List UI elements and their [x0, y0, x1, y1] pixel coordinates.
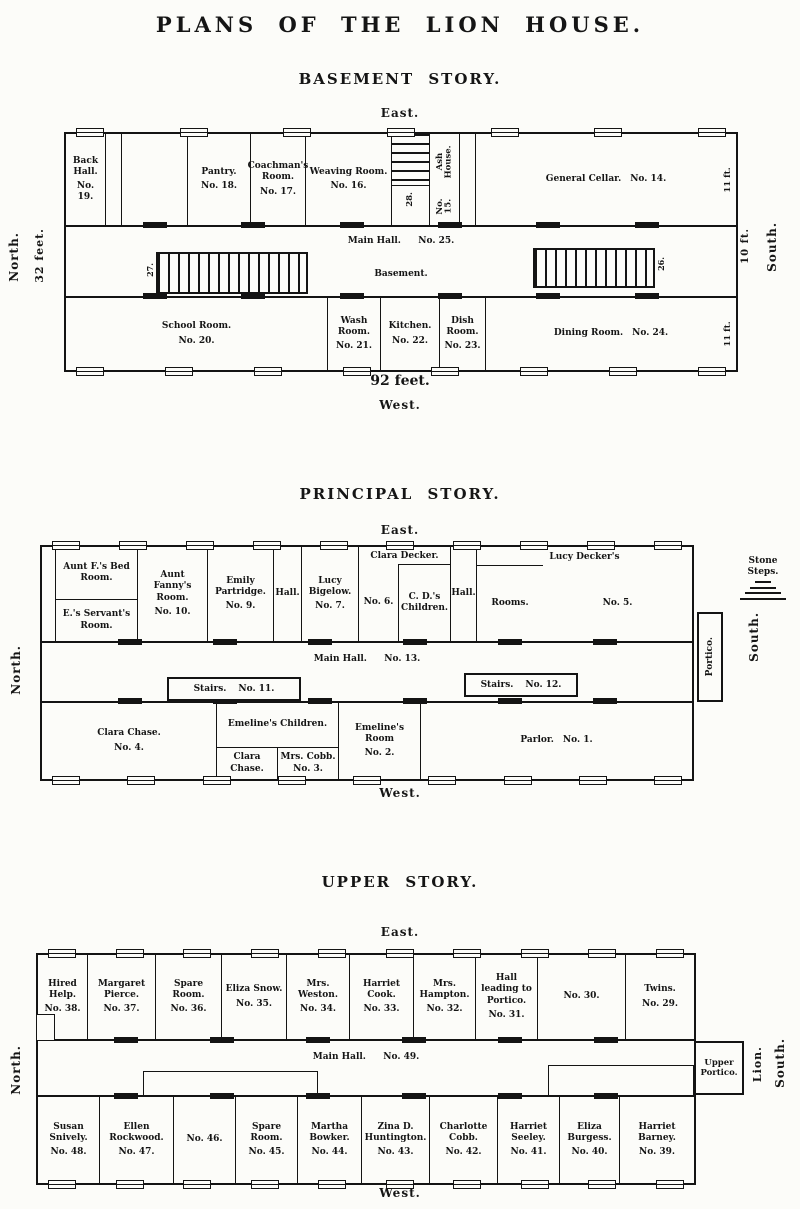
room-ellen-rockwood: Ellen Rockwood. No. 47. [100, 1097, 174, 1183]
room-number: No. 23. [445, 341, 481, 352]
stairs-label: Stairs. [194, 684, 227, 694]
room-lucy-decker: Lucy Decker's Rooms. No. 5. [477, 547, 692, 641]
room-label: Mrs. Cobb. [281, 752, 336, 763]
room-number: No. 21. [336, 341, 372, 352]
room-spare-36: Spare Room. No. 36. [156, 955, 222, 1039]
basement-main-hall: Main Hall. No. 25. Basement. 27. 26. [66, 227, 736, 298]
room-number: No. 2. [365, 748, 395, 759]
room-number: No. 25. [418, 236, 454, 246]
room-number: No. 31. [489, 1010, 525, 1021]
room-number: No. 44. [312, 1147, 348, 1158]
room-46: No. 46. [174, 1097, 236, 1183]
stairs-26 [533, 248, 655, 288]
room-label: Main Hall. [313, 1052, 366, 1062]
room-label: Coachman's Room. [248, 161, 309, 184]
room-label: Eliza Snow. [226, 984, 283, 995]
room-label: Emeline's Room [341, 723, 418, 746]
room-martha-bowker: Martha Bowker. No. 44. [298, 1097, 362, 1183]
room-label: Kitchen. [389, 321, 432, 332]
room-twins: Twins. No. 29. [626, 955, 694, 1039]
room-label: Wash Room. [330, 316, 378, 339]
room-number: No. 13. [384, 654, 420, 664]
room-label: Harriet Barney. [622, 1122, 692, 1145]
upper-south-row: Susan Snively. No. 48. Ellen Rockwood. N… [38, 1097, 694, 1183]
room-weaving: Weaving Room. No. 16. [306, 134, 392, 225]
room-lucy-decker-lower: Rooms. No. 5. [477, 565, 692, 641]
room-parlor: Parlor. No. 1. [421, 703, 692, 779]
room-pantry: Pantry. No. 18. [188, 134, 251, 225]
room-emeline-children: Emeline's Children. Clara Chase. Mrs. Co… [217, 703, 339, 779]
scanned-page: PLANS OF THE LION HOUSE. BASEMENT STORY.… [0, 0, 800, 1209]
room-mrs-weston: Mrs. Weston. No. 34. [287, 955, 350, 1039]
basement-north-row: Back Hall. No. 19. Pantry. No. 18. Coach… [66, 134, 736, 227]
room-number: No. 7. [315, 601, 345, 612]
basement-west-label: West. [0, 398, 800, 412]
upper-portico: Upper Portico. [694, 1041, 744, 1095]
passage-strip [106, 134, 122, 225]
room-aunt-f-bed-upper: Aunt F.'s Bed Room. [56, 547, 137, 600]
room-aunt-f-bed: Aunt F.'s Bed Room. E.'s Servant's Room. [56, 547, 138, 641]
stairs-28: 28. [392, 134, 430, 225]
room-label: Main Hall. [314, 654, 367, 664]
upper-north-label: North. [10, 1045, 22, 1095]
room-label: Zina D. Huntington. [364, 1122, 427, 1145]
upper-south-label: South. [774, 1038, 786, 1088]
room-30: No. 30. [538, 955, 626, 1039]
room-number: No. 39. [639, 1147, 675, 1158]
room-eliza-burgess: Eliza Burgess. No. 40. [560, 1097, 620, 1183]
basement-width-dimension: 32 feet. [34, 228, 45, 283]
step-line-icon [745, 592, 781, 594]
room-number: No. 19. [68, 181, 103, 204]
room-label-wrap: Clara Decker. [368, 547, 440, 564]
room-label: Clara Chase. [97, 728, 161, 739]
room-label: Pantry. [201, 167, 236, 178]
room-label: Emeline's Children. [228, 719, 327, 730]
room-label: Harriet Cook. [352, 979, 411, 1002]
principal-south-label: South. [748, 612, 760, 662]
room-label: Mrs. Weston. [289, 979, 347, 1002]
room-charlotte-cobb: Charlotte Cobb. No. 42. [430, 1097, 498, 1183]
unlabeled-room [122, 134, 188, 225]
room-number: No. 42. [446, 1147, 482, 1158]
room-number: No. 36. [171, 1004, 207, 1015]
room-label: Emily Partridge. [210, 576, 271, 599]
room-mrs-cobb: Mrs. Cobb. No. 3. [278, 748, 338, 779]
room-number: No. 32. [427, 1004, 463, 1015]
room-label: Ash House. [436, 136, 453, 187]
basement-south-label: South. [766, 222, 778, 272]
stairs-27 [156, 252, 308, 294]
room-number: No. 45. [249, 1147, 285, 1158]
stairs-11: Stairs. No. 11. [167, 677, 301, 701]
room-label: School Room. [162, 321, 231, 332]
main-hall-label: Main Hall. No. 49. [38, 1051, 694, 1063]
room-label: Martha Bowker. [300, 1122, 359, 1145]
room-number: No. 37. [104, 1004, 140, 1015]
room-number: No. 15. [436, 190, 453, 223]
room-number: No. 17. [260, 187, 296, 198]
closet-notch [37, 1014, 55, 1040]
room-label: Mrs. Hampton. [416, 979, 473, 1002]
room-ash-house: Ash House. No. 15. [430, 134, 460, 225]
step-line-icon [750, 587, 776, 589]
basement-hall-width-dimension: 10 ft. [741, 228, 751, 264]
room-label: Hall. [275, 588, 299, 599]
principal-plan: Aunt F.'s Bed Room. E.'s Servant's Room.… [40, 545, 694, 781]
basement-north-label: North. [8, 232, 20, 282]
stairs-26-number: 26. [656, 257, 666, 271]
upper-lion-label: Lion. [752, 1046, 763, 1082]
room-wash: Wash Room. No. 21. [328, 298, 381, 370]
room-emeline-children-upper: Emeline's Children. [217, 703, 338, 748]
principal-south-row: Clara Chase. No. 4. Emeline's Children. … [42, 703, 692, 779]
passage-strip [460, 134, 476, 225]
room-clara-chase: Clara Chase. No. 4. [42, 703, 217, 779]
room-label: Spare Room. [158, 979, 219, 1002]
portico: Portico. [697, 612, 723, 702]
room-harriet-seeley: Harriet Seeley. No. 41. [498, 1097, 560, 1183]
upper-portico-label: Upper Portico. [698, 1058, 740, 1078]
upper-west-label: West. [0, 1186, 800, 1200]
room-label: Weaving Room. [310, 167, 388, 178]
room-number: No. 9. [226, 601, 256, 612]
room-number: No. 29. [642, 999, 678, 1010]
room-lucy-decker-rooms: Rooms. [477, 565, 543, 641]
room-harriet-cook: Harriet Cook. No. 33. [350, 955, 414, 1039]
principal-east-label: East. [0, 523, 800, 537]
room-coachman: Coachman's Room. No. 17. [251, 134, 306, 225]
room-label: General Cellar. [546, 174, 621, 185]
stone-steps-label: Stone Steps. [748, 556, 779, 577]
principal-main-hall: Main Hall. No. 13. Stairs. No. 11. Stair… [42, 643, 692, 703]
stairs-number: No. 12. [525, 680, 561, 690]
room-label: Dining Room. [554, 328, 623, 339]
principal-west-label: West. [0, 786, 800, 800]
upper-main-hall: Main Hall. No. 49. [38, 1041, 694, 1097]
upper-title: UPPER STORY. [0, 873, 800, 891]
room-number: No. 16. [331, 181, 367, 192]
room-lucy-decker-number-area: No. 5. [543, 565, 692, 641]
room-label: Spare Room. [238, 1122, 295, 1145]
stairs-label: Stairs. [481, 680, 514, 690]
room-harriet-barney: Harriet Barney. No. 39. [620, 1097, 694, 1183]
stairs-number: 28. [406, 192, 415, 207]
room-label: Eliza Burgess. [562, 1122, 617, 1145]
room-label: Back Hall. [68, 156, 103, 179]
room-number: No. 24. [632, 328, 668, 339]
principal-title: PRINCIPAL STORY. [0, 485, 800, 503]
room-number: No. 40. [572, 1147, 608, 1158]
room-label: Hired Help. [40, 979, 85, 1002]
room-dish: Dish Room. No. 23. [440, 298, 486, 370]
room-zina-huntington: Zina D. Huntington. No. 43. [362, 1097, 430, 1183]
room-label: E.'s Servant's Room. [58, 609, 135, 632]
room-label: Charlotte Cobb. [432, 1122, 495, 1145]
room-label: Clara Chase. [219, 752, 275, 775]
room-number: No. 47. [119, 1147, 155, 1158]
basement-south-row: School Room. No. 20. Wash Room. No. 21. … [66, 298, 736, 370]
stairwell-outline [548, 1065, 694, 1097]
room-margaret-pierce: Margaret Pierce. No. 37. [88, 955, 156, 1039]
main-hall-label: Main Hall. No. 13. [42, 653, 692, 665]
room-number: No. 34. [300, 1004, 336, 1015]
stone-steps: Stone Steps. [733, 556, 793, 600]
room-label: Parlor. [520, 735, 554, 746]
upper-east-label: East. [0, 925, 800, 939]
room-emeline-children-lower: Clara Chase. Mrs. Cobb. No. 3. [217, 748, 338, 779]
room-label: Susan Snively. [40, 1122, 97, 1145]
main-hall-label: Main Hall. No. 25. [66, 235, 736, 247]
room-number: No. 22. [392, 336, 428, 347]
room-number: No. 14. [630, 174, 666, 185]
room-clara-decker-lower: No. 6. C. D.'s Children. [359, 564, 450, 641]
portico-label: Portico. [706, 637, 715, 676]
room-label: Lucy Bigelow. [304, 576, 356, 599]
room-label: Aunt Fanny's Room. [140, 570, 205, 604]
room-label: Dish Room. [442, 316, 483, 339]
room-kitchen: Kitchen. No. 22. [381, 298, 440, 370]
room-lucy-bigelow: Lucy Bigelow. No. 7. [302, 547, 359, 641]
page-title: PLANS OF THE LION HOUSE. [0, 12, 800, 37]
stairs-number: No. 11. [238, 684, 274, 694]
room-hall-to-portico: Hall leading to Portico. No. 31. [476, 955, 538, 1039]
room-number: No. 3. [293, 764, 323, 775]
room-number: No. 4. [114, 743, 144, 754]
upper-north-row: Hired Help. No. 38. Margaret Pierce. No.… [38, 955, 694, 1041]
depth-dimension: 11 ft. [723, 321, 733, 346]
stairs-27-number: 27. [145, 263, 155, 277]
room-label: Harriet Seeley. [500, 1122, 557, 1145]
room-e-servant: E.'s Servant's Room. [56, 600, 137, 641]
room-label: Aunt F.'s Bed Room. [58, 562, 135, 585]
room-clara-decker: Clara Decker. No. 6. C. D.'s Children. [359, 547, 451, 641]
room-number: No. 6. [364, 597, 394, 608]
room-dining: Dining Room. No. 24. 11 ft. [486, 298, 736, 370]
room-label: Main Hall. [348, 236, 401, 246]
room-label: Ellen Rockwood. [102, 1122, 171, 1145]
step-line-icon [740, 598, 786, 600]
room-spare-45: Spare Room. No. 45. [236, 1097, 298, 1183]
room-label: Lucy Decker's [549, 552, 619, 563]
room-hired-help: Hired Help. No. 38. [38, 955, 88, 1039]
room-number: No. 33. [364, 1004, 400, 1015]
basement-length-dimension: 92 feet. [0, 373, 800, 389]
stairs-icon [392, 134, 429, 186]
room-number: No. 10. [155, 607, 191, 618]
room-hall-1: Hall. [274, 547, 302, 641]
room-number: No. 20. [179, 336, 215, 347]
room-clara-chase-small: Clara Chase. [217, 748, 278, 779]
room-number: No. 5. [603, 598, 633, 609]
basement-title: BASEMENT STORY. [0, 70, 800, 88]
room-number: No. 48. [51, 1147, 87, 1158]
stairwell-outline [143, 1071, 318, 1097]
room-emeline: Emeline's Room No. 2. [339, 703, 421, 779]
room-number: No. 46. [187, 1134, 223, 1145]
passage-strip [42, 547, 56, 641]
depth-dimension: 11 ft. [723, 167, 733, 192]
room-label-wrap: Lucy Decker's [547, 547, 621, 565]
stairs-12: Stairs. No. 12. [464, 673, 578, 697]
room-label: Twins. [644, 984, 676, 995]
room-number: No. 35. [236, 999, 272, 1010]
basement-plan: Back Hall. No. 19. Pantry. No. 18. Coach… [64, 132, 738, 372]
step-line-icon [755, 581, 771, 583]
room-number: No. 18. [201, 181, 237, 192]
room-hall-2: Hall. [451, 547, 477, 641]
basement-east-label: East. [0, 106, 800, 120]
room-number: No. 43. [378, 1147, 414, 1158]
room-eliza-snow: Eliza Snow. No. 35. [222, 955, 287, 1039]
room-general-cellar: General Cellar. No. 14. 11 ft. [476, 134, 736, 225]
upper-plan: Hired Help. No. 38. Margaret Pierce. No.… [36, 953, 696, 1185]
room-label: Clara Decker. [370, 551, 438, 562]
room-label: Margaret Pierce. [90, 979, 153, 1002]
room-label: Hall. [451, 588, 475, 599]
room-aunt-fanny: Aunt Fanny's Room. No. 10. [138, 547, 208, 641]
room-number: No. 1. [563, 735, 593, 746]
room-school: School Room. No. 20. [66, 298, 328, 370]
room-label: Hall leading to Portico. [478, 973, 535, 1007]
principal-north-label: North. [10, 645, 22, 695]
principal-north-row: Aunt F.'s Bed Room. E.'s Servant's Room.… [42, 547, 692, 643]
room-mrs-hampton: Mrs. Hampton. No. 32. [414, 955, 476, 1039]
room-number: No. 49. [383, 1052, 419, 1062]
room-number: No. 41. [511, 1147, 547, 1158]
room-cd-children: C. D.'s Children. [398, 564, 450, 641]
room-label: Rooms. [491, 598, 528, 609]
room-number: No. 30. [564, 991, 600, 1002]
room-susan-snively: Susan Snively. No. 48. [38, 1097, 100, 1183]
room-clara-decker-number-area: No. 6. [359, 564, 398, 641]
room-label: C. D.'s Children. [401, 592, 448, 615]
room-back-hall: Back Hall. No. 19. [66, 134, 106, 225]
room-emily-partridge: Emily Partridge. No. 9. [208, 547, 274, 641]
